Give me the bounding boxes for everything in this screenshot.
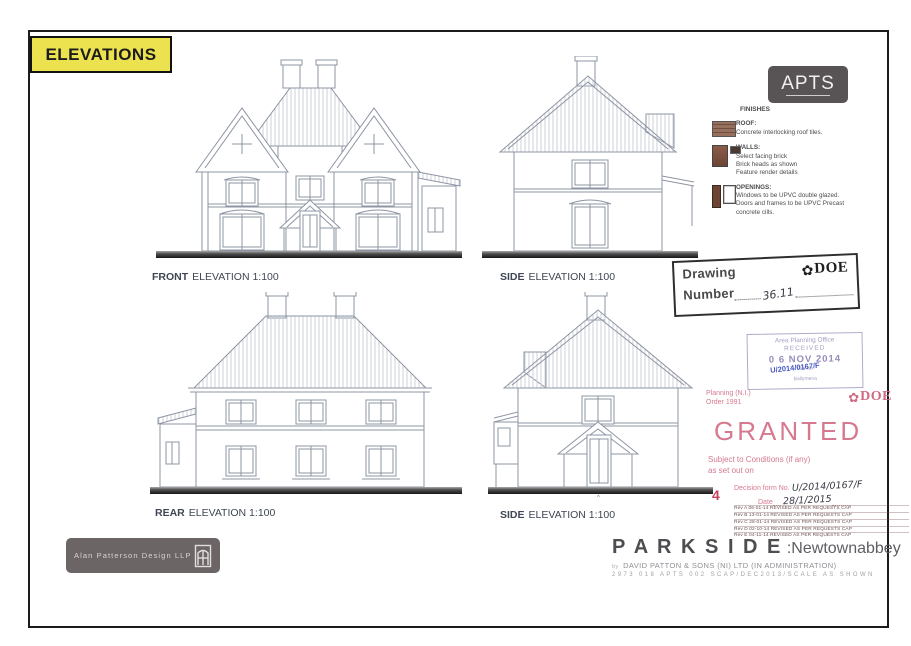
side-elevation-bottom-drawing: [488, 292, 713, 507]
roof-tile-swatch: [712, 121, 736, 137]
project-title-block: P A R K S I D E :Newtownabbey by DAVID P…: [612, 536, 904, 578]
finishes-roof-row: ROOF: Concrete interlocking roof tiles.: [712, 120, 890, 137]
designer-name: Alan Patterson Design LLP: [74, 551, 192, 560]
side-elevation-top-label-bold: SIDE: [500, 271, 525, 283]
client-name: DAVID PATTON & SONS (NI) LTD (IN ADMINIS…: [623, 561, 836, 570]
apts-logo-underline: [786, 95, 830, 96]
drawing-number-stamp: Drawing ✿ DOE Number 36.11: [672, 253, 860, 317]
door-swatch: [712, 185, 721, 208]
side-elevation-top-label: SIDEELEVATION 1:100: [500, 271, 615, 283]
openings-note-2: Doors and frames to be UPVC Precast: [736, 200, 844, 208]
drawing-number-value: 36.11: [762, 285, 795, 303]
side-elevation-top-label-rest: ELEVATION 1:100: [529, 271, 616, 283]
finishes-openings-row: OPENINGS: Windows to be UPVC double glaz…: [712, 184, 890, 217]
dotted-leader: [734, 287, 760, 300]
doe-logo-red: ✿ DOE: [848, 389, 892, 405]
granted-corner-number: 4: [712, 487, 720, 503]
granted-order-line: Order 1991: [706, 398, 751, 407]
granted-decision-label: Decision form No.: [734, 485, 790, 492]
walls-note-2: Brick heads as shown: [736, 161, 798, 169]
openings-note-3: concrete cills.: [736, 209, 844, 217]
granted-conditions-2: as set out on: [708, 465, 892, 476]
walls-title: WALLS:: [736, 144, 798, 152]
granted-stamp: Planning (N.I.) Order 1991 ✿ DOE GRANTED…: [706, 389, 892, 507]
apts-logo-text: APTS: [781, 74, 835, 93]
revision-line: Rev D 02-10-14 REVISED AS PER REQUESTS C…: [734, 526, 909, 533]
drawing-number-label-2: Number: [683, 285, 735, 302]
roof-title: ROOF:: [736, 120, 822, 128]
doe-logo-text: DOE: [814, 259, 849, 277]
walls-note-1: Select facing brick: [736, 153, 798, 161]
doe-flower-icon-red: ✿: [848, 391, 859, 404]
revision-line: Rev A 06-01-14 REVISED AS PER REQUESTS C…: [734, 505, 909, 512]
front-elevation-drawing: [150, 56, 470, 271]
doe-flower-icon: ✿: [801, 262, 813, 276]
granted-decision-number: U/2014/0167/F: [791, 479, 862, 494]
drawing-number-label-1: Drawing: [682, 264, 736, 281]
client-prefix: by: [612, 564, 619, 570]
sheet-title: ELEVATIONS: [45, 45, 156, 65]
front-elevation-label: FRONTELEVATION 1:100: [152, 271, 279, 283]
granted-conditions-1: Subject to Conditions (if any): [708, 454, 892, 465]
doe-logo: ✿ DOE: [801, 259, 848, 278]
apts-logo: APTS: [768, 66, 848, 103]
openings-note-1: Windows to be UPVC double glazed.: [736, 192, 844, 200]
rear-elevation-label-rest: ELEVATION 1:100: [189, 507, 276, 519]
job-reference: 2973 018 APTS 002 SCAP/DEC2013/SCALE AS …: [612, 572, 904, 578]
finishes-heading: FINISHES: [740, 106, 890, 114]
dotted-leader: [795, 283, 853, 298]
revision-line: Rev C 28-01-14 REVISED AS PER REQUESTS C…: [734, 519, 909, 526]
doe-logo-text-red: DOE: [860, 389, 892, 405]
rear-elevation-drawing: [150, 292, 470, 507]
openings-title: OPENINGS:: [736, 184, 844, 192]
received-district: Ballymena: [748, 375, 862, 383]
front-elevation-label-bold: FRONT: [152, 271, 188, 283]
side-elevation-top-drawing: [480, 56, 700, 271]
drawing-sheet: ELEVATIONS: [0, 0, 911, 646]
door-icon: [194, 544, 212, 568]
finishes-walls-row: WALLS: Select facing brick Brick heads a…: [712, 144, 890, 177]
received-word: RECEIVED: [748, 344, 862, 353]
side-elevation-bottom-label-bold: SIDE: [500, 509, 525, 521]
granted-title: GRANTED: [714, 416, 892, 447]
front-elevation-label-rest: ELEVATION 1:100: [192, 271, 279, 283]
side-elevation-bottom-label: SIDEELEVATION 1:100: [500, 509, 615, 521]
walls-note-3: Feature render details: [736, 169, 798, 177]
side-elevation-bottom-label-rest: ELEVATION 1:100: [529, 509, 616, 521]
rear-elevation-label: REARELEVATION 1:100: [155, 507, 275, 519]
granted-planning-line: Planning (N.I.): [706, 389, 751, 398]
received-stamp: Area Planning Office RECEIVED 0 6 NOV 20…: [747, 332, 864, 390]
designer-badge: Alan Patterson Design LLP: [66, 538, 220, 573]
rear-elevation-label-bold: REAR: [155, 507, 185, 519]
finishes-legend: FINISHES ROOF: Concrete interlocking roo…: [712, 106, 890, 224]
project-location: :Newtownabbey: [787, 540, 901, 557]
revision-line: Rev B 13-01-14 REVISED AS PER REQUESTS C…: [734, 512, 909, 519]
project-name: P A R K S I D E: [612, 536, 782, 558]
roof-note: Concrete interlocking roof tiles.: [736, 129, 822, 137]
wall-brick-swatch: [712, 145, 728, 167]
window-swatch: [723, 185, 736, 204]
ground-level-caret: ^: [597, 495, 600, 501]
revision-notes: Rev A 06-01-14 REVISED AS PER REQUESTS C…: [734, 505, 909, 539]
